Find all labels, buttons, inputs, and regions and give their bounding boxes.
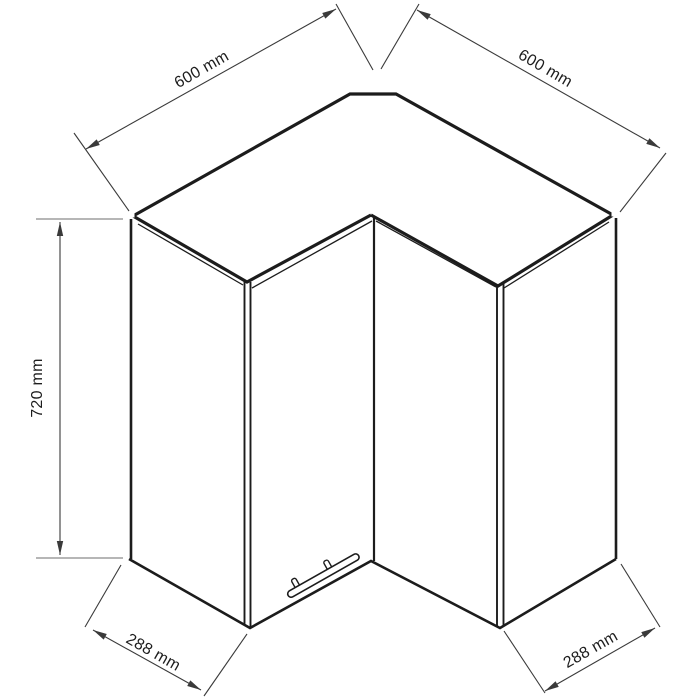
- extension-line: [504, 631, 545, 693]
- top-front-left-edges: [133, 215, 371, 282]
- right-door-edge-lines: [497, 284, 504, 627]
- left-door-edge-lines: [245, 281, 251, 627]
- handle-bar: [286, 553, 360, 599]
- dimension-label-height: 720 mm: [29, 358, 46, 418]
- dimension-line: [86, 9, 336, 149]
- extension-line: [74, 133, 129, 211]
- dimension-bottom-right: 288 mm: [504, 564, 660, 693]
- dimension-label-bottom-left: 288 mm: [123, 631, 183, 675]
- extension-line: [336, 4, 373, 70]
- extension-line: [85, 565, 121, 627]
- dimension-bottom-left: 288 mm: [85, 565, 247, 696]
- extension-line: [621, 564, 660, 627]
- extension-line: [620, 153, 666, 212]
- bottom-edges: [129, 559, 616, 628]
- dimension-label-top-left: 600 mm: [172, 48, 232, 92]
- dimension-label-top-right: 600 mm: [515, 46, 575, 91]
- corner-cabinet-drawing: 600 mm 600 mm 720 mm 288 mm: [0, 0, 700, 700]
- left-corner-notch: [131, 214, 135, 218]
- technical-drawing-page: 600 mm 600 mm 720 mm 288 mm: [0, 0, 700, 700]
- door-handle: [282, 545, 360, 598]
- extension-line: [381, 4, 419, 69]
- extension-line: [204, 634, 247, 696]
- top-back-edges: [133, 94, 613, 216]
- right-corner-notch: [612, 213, 616, 217]
- top-front-right-edges: [371, 215, 613, 286]
- cabinet-outline: [129, 94, 616, 628]
- dimension-height: 720 mm: [29, 219, 123, 558]
